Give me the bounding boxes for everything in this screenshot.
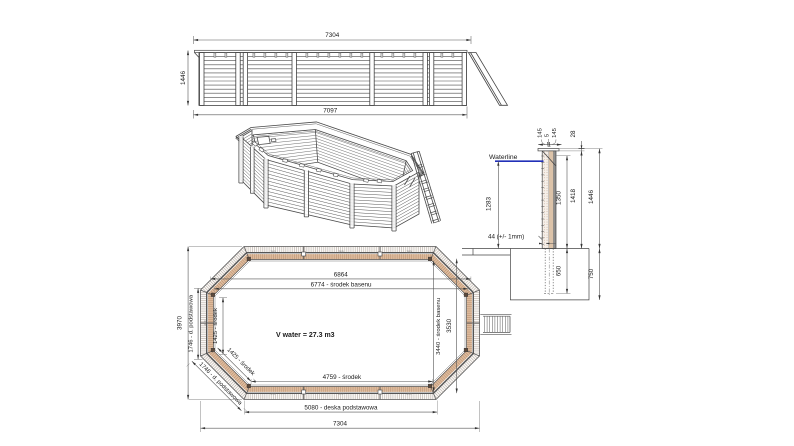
svg-text:260: 260 [338, 392, 343, 396]
svg-text:1418: 1418 [570, 189, 577, 204]
svg-text:3440 - środek basenu: 3440 - środek basenu [436, 298, 442, 355]
svg-text:260: 260 [471, 320, 475, 325]
svg-text:7097: 7097 [323, 107, 338, 114]
svg-text:145: 145 [552, 128, 558, 138]
svg-text:145: 145 [538, 128, 544, 138]
svg-text:650: 650 [556, 265, 563, 276]
svg-text:5: 5 [545, 134, 551, 137]
svg-text:6774 - środek basenu: 6774 - środek basenu [311, 281, 372, 288]
svg-text:1425 - środek: 1425 - środek [213, 308, 219, 344]
svg-text:7304: 7304 [325, 32, 340, 39]
svg-text:1746 - d. podstawowa: 1746 - d. podstawowa [189, 294, 195, 352]
svg-text:3970: 3970 [177, 316, 184, 331]
svg-text:260: 260 [406, 392, 411, 396]
svg-text:260: 260 [270, 392, 275, 396]
svg-text:1283: 1283 [486, 197, 493, 212]
svg-text:44 (+/- 1mm): 44 (+/- 1mm) [488, 234, 524, 241]
svg-text:6864: 6864 [334, 271, 349, 278]
svg-text:7304: 7304 [333, 421, 348, 428]
svg-text:5080 - deska podstawowa: 5080 - deska podstawowa [304, 405, 378, 412]
svg-text:260: 260 [270, 249, 275, 253]
svg-text:1350: 1350 [556, 191, 563, 206]
svg-text:28: 28 [570, 130, 577, 138]
svg-text:1446: 1446 [180, 71, 187, 86]
svg-text:4759 - środek: 4759 - środek [323, 374, 362, 381]
svg-text:260: 260 [406, 249, 411, 253]
svg-text:260: 260 [338, 249, 343, 253]
svg-text:260: 260 [203, 320, 207, 325]
svg-text:Waterline: Waterline [489, 154, 518, 161]
svg-text:750: 750 [588, 268, 595, 279]
svg-text:1446: 1446 [588, 190, 595, 205]
svg-text:3530: 3530 [446, 318, 453, 333]
svg-text:V water = 27.3 m3: V water = 27.3 m3 [276, 332, 335, 339]
